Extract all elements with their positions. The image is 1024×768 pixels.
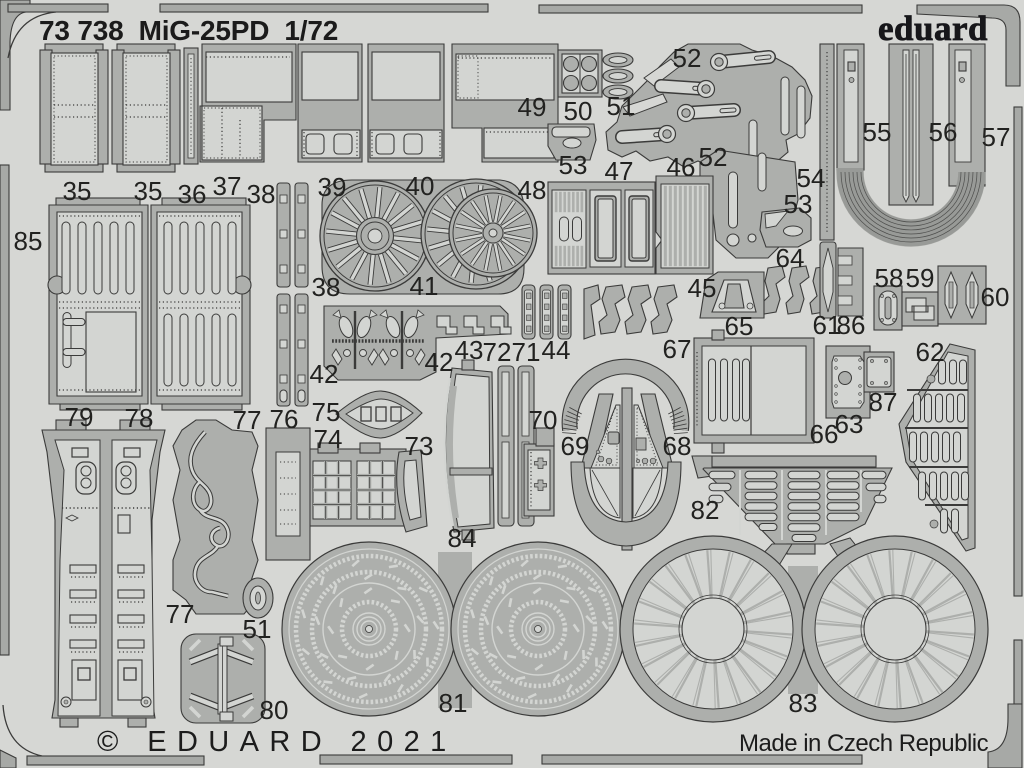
svg-text:35: 35 xyxy=(134,176,163,206)
svg-text:35: 35 xyxy=(63,176,92,206)
svg-text:40: 40 xyxy=(406,171,435,201)
svg-text:49: 49 xyxy=(518,92,547,122)
svg-text:© EDUARD 2021: © EDUARD 2021 xyxy=(97,726,457,758)
svg-text:76: 76 xyxy=(270,404,299,434)
svg-text:51: 51 xyxy=(607,91,636,121)
svg-text:71: 71 xyxy=(512,337,541,367)
svg-text:42: 42 xyxy=(425,347,454,377)
svg-text:68: 68 xyxy=(663,431,692,461)
svg-text:69: 69 xyxy=(561,431,590,461)
svg-text:67: 67 xyxy=(663,334,692,364)
svg-text:85: 85 xyxy=(14,226,43,256)
svg-text:75: 75 xyxy=(312,397,341,427)
svg-text:77: 77 xyxy=(166,599,195,629)
svg-text:83: 83 xyxy=(789,688,818,718)
svg-text:48: 48 xyxy=(518,175,547,205)
svg-text:78: 78 xyxy=(125,403,154,433)
svg-text:37: 37 xyxy=(213,171,242,201)
svg-text:50: 50 xyxy=(564,96,593,126)
svg-text:86: 86 xyxy=(837,310,866,340)
svg-text:54: 54 xyxy=(797,163,826,193)
svg-text:60: 60 xyxy=(981,282,1010,312)
svg-text:52: 52 xyxy=(673,43,702,73)
svg-text:46: 46 xyxy=(667,152,696,182)
svg-text:80: 80 xyxy=(260,695,289,725)
svg-text:56: 56 xyxy=(929,117,958,147)
svg-text:70: 70 xyxy=(529,405,558,435)
svg-text:41: 41 xyxy=(410,271,439,301)
svg-text:52: 52 xyxy=(699,142,728,172)
svg-text:43: 43 xyxy=(455,335,484,365)
svg-text:38: 38 xyxy=(247,179,276,209)
svg-text:74: 74 xyxy=(314,424,343,454)
svg-text:84: 84 xyxy=(448,523,477,553)
svg-text:eduard: eduard xyxy=(878,9,988,48)
svg-text:72: 72 xyxy=(483,337,512,367)
svg-text:57: 57 xyxy=(982,122,1011,152)
svg-text:45: 45 xyxy=(688,273,717,303)
svg-text:53: 53 xyxy=(559,150,588,180)
svg-text:53: 53 xyxy=(784,189,813,219)
svg-text:59: 59 xyxy=(906,263,935,293)
svg-text:55: 55 xyxy=(863,117,892,147)
svg-text:Made in Czech Republic: Made in Czech Republic xyxy=(739,730,989,757)
svg-text:47: 47 xyxy=(605,156,634,186)
svg-text:65: 65 xyxy=(725,311,754,341)
svg-text:63: 63 xyxy=(835,409,864,439)
svg-text:77: 77 xyxy=(233,405,262,435)
svg-text:51: 51 xyxy=(243,614,272,644)
svg-text:87: 87 xyxy=(869,387,898,417)
svg-text:81: 81 xyxy=(439,688,468,718)
svg-text:62: 62 xyxy=(916,337,945,367)
svg-text:42: 42 xyxy=(310,359,339,389)
svg-text:58: 58 xyxy=(875,263,904,293)
svg-text:73: 73 xyxy=(405,431,434,461)
svg-text:64: 64 xyxy=(776,243,805,273)
svg-text:44: 44 xyxy=(542,335,571,365)
svg-text:82: 82 xyxy=(691,495,720,525)
svg-text:73 738 MiG-25PD 1/72: 73 738 MiG-25PD 1/72 xyxy=(39,15,338,46)
svg-text:79: 79 xyxy=(65,402,94,432)
svg-text:38: 38 xyxy=(312,272,341,302)
svg-text:36: 36 xyxy=(178,179,207,209)
svg-text:39: 39 xyxy=(318,172,347,202)
